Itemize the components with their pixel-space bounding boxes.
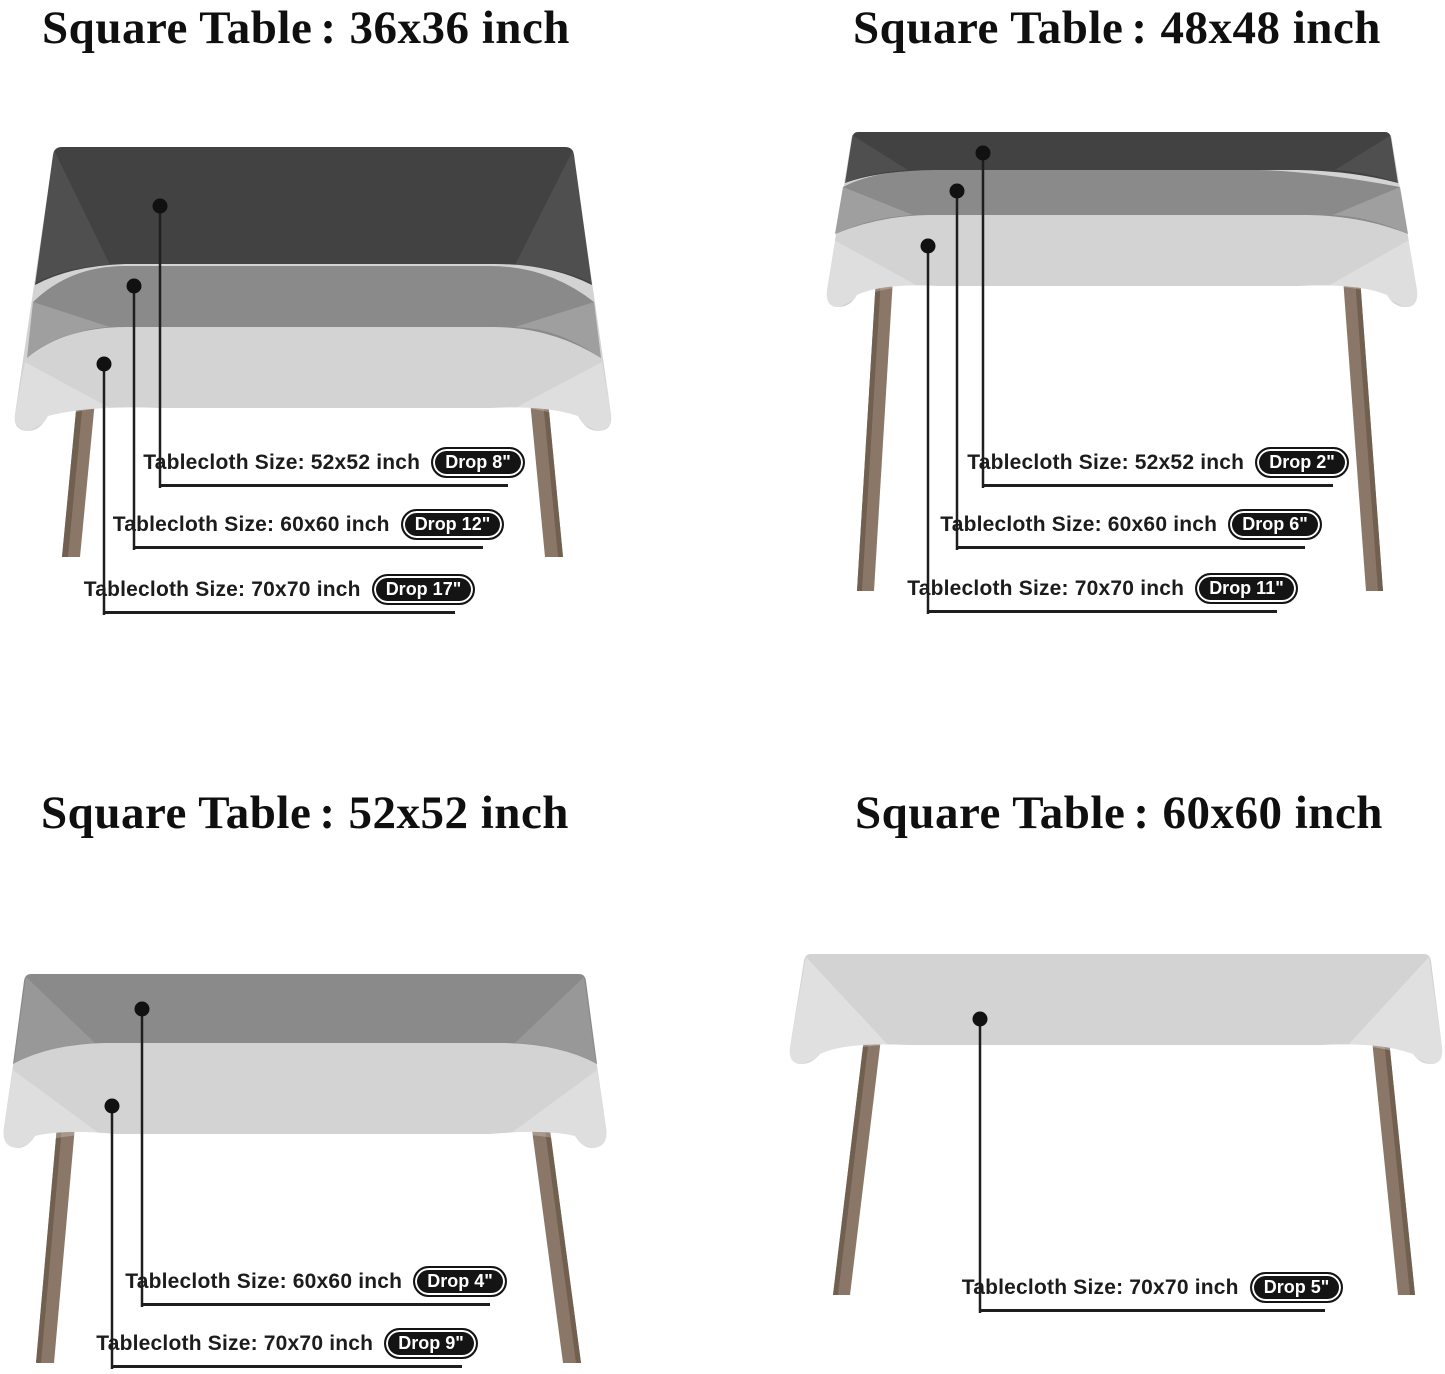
- tablecloth-size-label: Tablecloth Size: 60x60 inch: [113, 514, 390, 535]
- quadrant-table-52x52: Square Table:52x52 inch Tablecloth Size:…: [0, 687, 722, 1374]
- callout-row: Tablecloth Size: 60x60 inch Drop 12": [134, 509, 483, 549]
- drop-badge: Drop 6": [1228, 509, 1322, 540]
- callout-row: Tablecloth Size: 70x70 inch Drop 5": [980, 1272, 1325, 1312]
- drop-badge: Drop 2": [1255, 447, 1349, 478]
- callout-dot: [973, 1012, 988, 1027]
- tablecloth-layer-70x70: [790, 954, 1442, 1064]
- tablecloth-size-label: Tablecloth Size: 70x70 inch: [84, 579, 361, 600]
- callout-row: Tablecloth Size: 70x70 inch Drop 9": [112, 1328, 462, 1368]
- drop-badge: Drop 11": [1195, 573, 1298, 604]
- tablecloth-size-label: Tablecloth Size: 70x70 inch: [962, 1277, 1239, 1298]
- tablecloth-size-label: Tablecloth Size: 60x60 inch: [125, 1271, 402, 1292]
- tablecloth-size-label: Tablecloth Size: 70x70 inch: [907, 578, 1184, 599]
- drop-badge: Drop 4": [413, 1266, 507, 1297]
- quadrant-table-36x36: Square Table:36x36 inch: [0, 0, 722, 687]
- callout-row: Tablecloth Size: 60x60 inch Drop 6": [957, 509, 1305, 549]
- callout-dot: [950, 184, 965, 199]
- callout-row: Tablecloth Size: 60x60 inch Drop 4": [142, 1266, 490, 1306]
- tablecloth-size-label: Tablecloth Size: 70x70 inch: [96, 1333, 373, 1354]
- table-illustration-60x60: [723, 687, 1445, 1374]
- table-legs: [36, 1115, 581, 1363]
- drop-badge: Drop 8": [431, 447, 525, 478]
- callout-dot: [135, 1002, 150, 1017]
- callout-dot: [127, 279, 142, 294]
- drop-badge: Drop 5": [1250, 1272, 1344, 1303]
- drop-badge: Drop 9": [384, 1328, 478, 1359]
- callout-dots: [973, 1012, 988, 1027]
- callout-dot: [976, 146, 991, 161]
- tablecloth-size-infographic: { "page": { "background": "#ffffff" }, "…: [0, 0, 1445, 1374]
- callout-row: Tablecloth Size: 52x52 inch Drop 8": [160, 447, 508, 487]
- quadrant-table-48x48: Square Table:48x48 inch: [723, 0, 1445, 687]
- callout-dot: [921, 239, 936, 254]
- quadrant-table-60x60: Square Table:60x60 inch Tablecloth Size:…: [723, 687, 1445, 1374]
- callout-dot: [153, 199, 168, 214]
- drop-badge: Drop 12": [401, 509, 505, 540]
- tablecloth-size-label: Tablecloth Size: 52x52 inch: [143, 452, 420, 473]
- table-legs: [833, 1030, 1415, 1295]
- callout-dot: [105, 1099, 120, 1114]
- drop-badge: Drop 17": [372, 574, 476, 605]
- callout-row: Tablecloth Size: 70x70 inch Drop 11": [928, 573, 1277, 613]
- callout-row: Tablecloth Size: 52x52 inch Drop 2": [983, 447, 1333, 487]
- tablecloth-size-label: Tablecloth Size: 60x60 inch: [940, 514, 1217, 535]
- callout-dot: [97, 357, 112, 372]
- tablecloth-size-label: Tablecloth Size: 52x52 inch: [967, 452, 1244, 473]
- callout-row: Tablecloth Size: 70x70 inch Drop 17": [104, 574, 455, 614]
